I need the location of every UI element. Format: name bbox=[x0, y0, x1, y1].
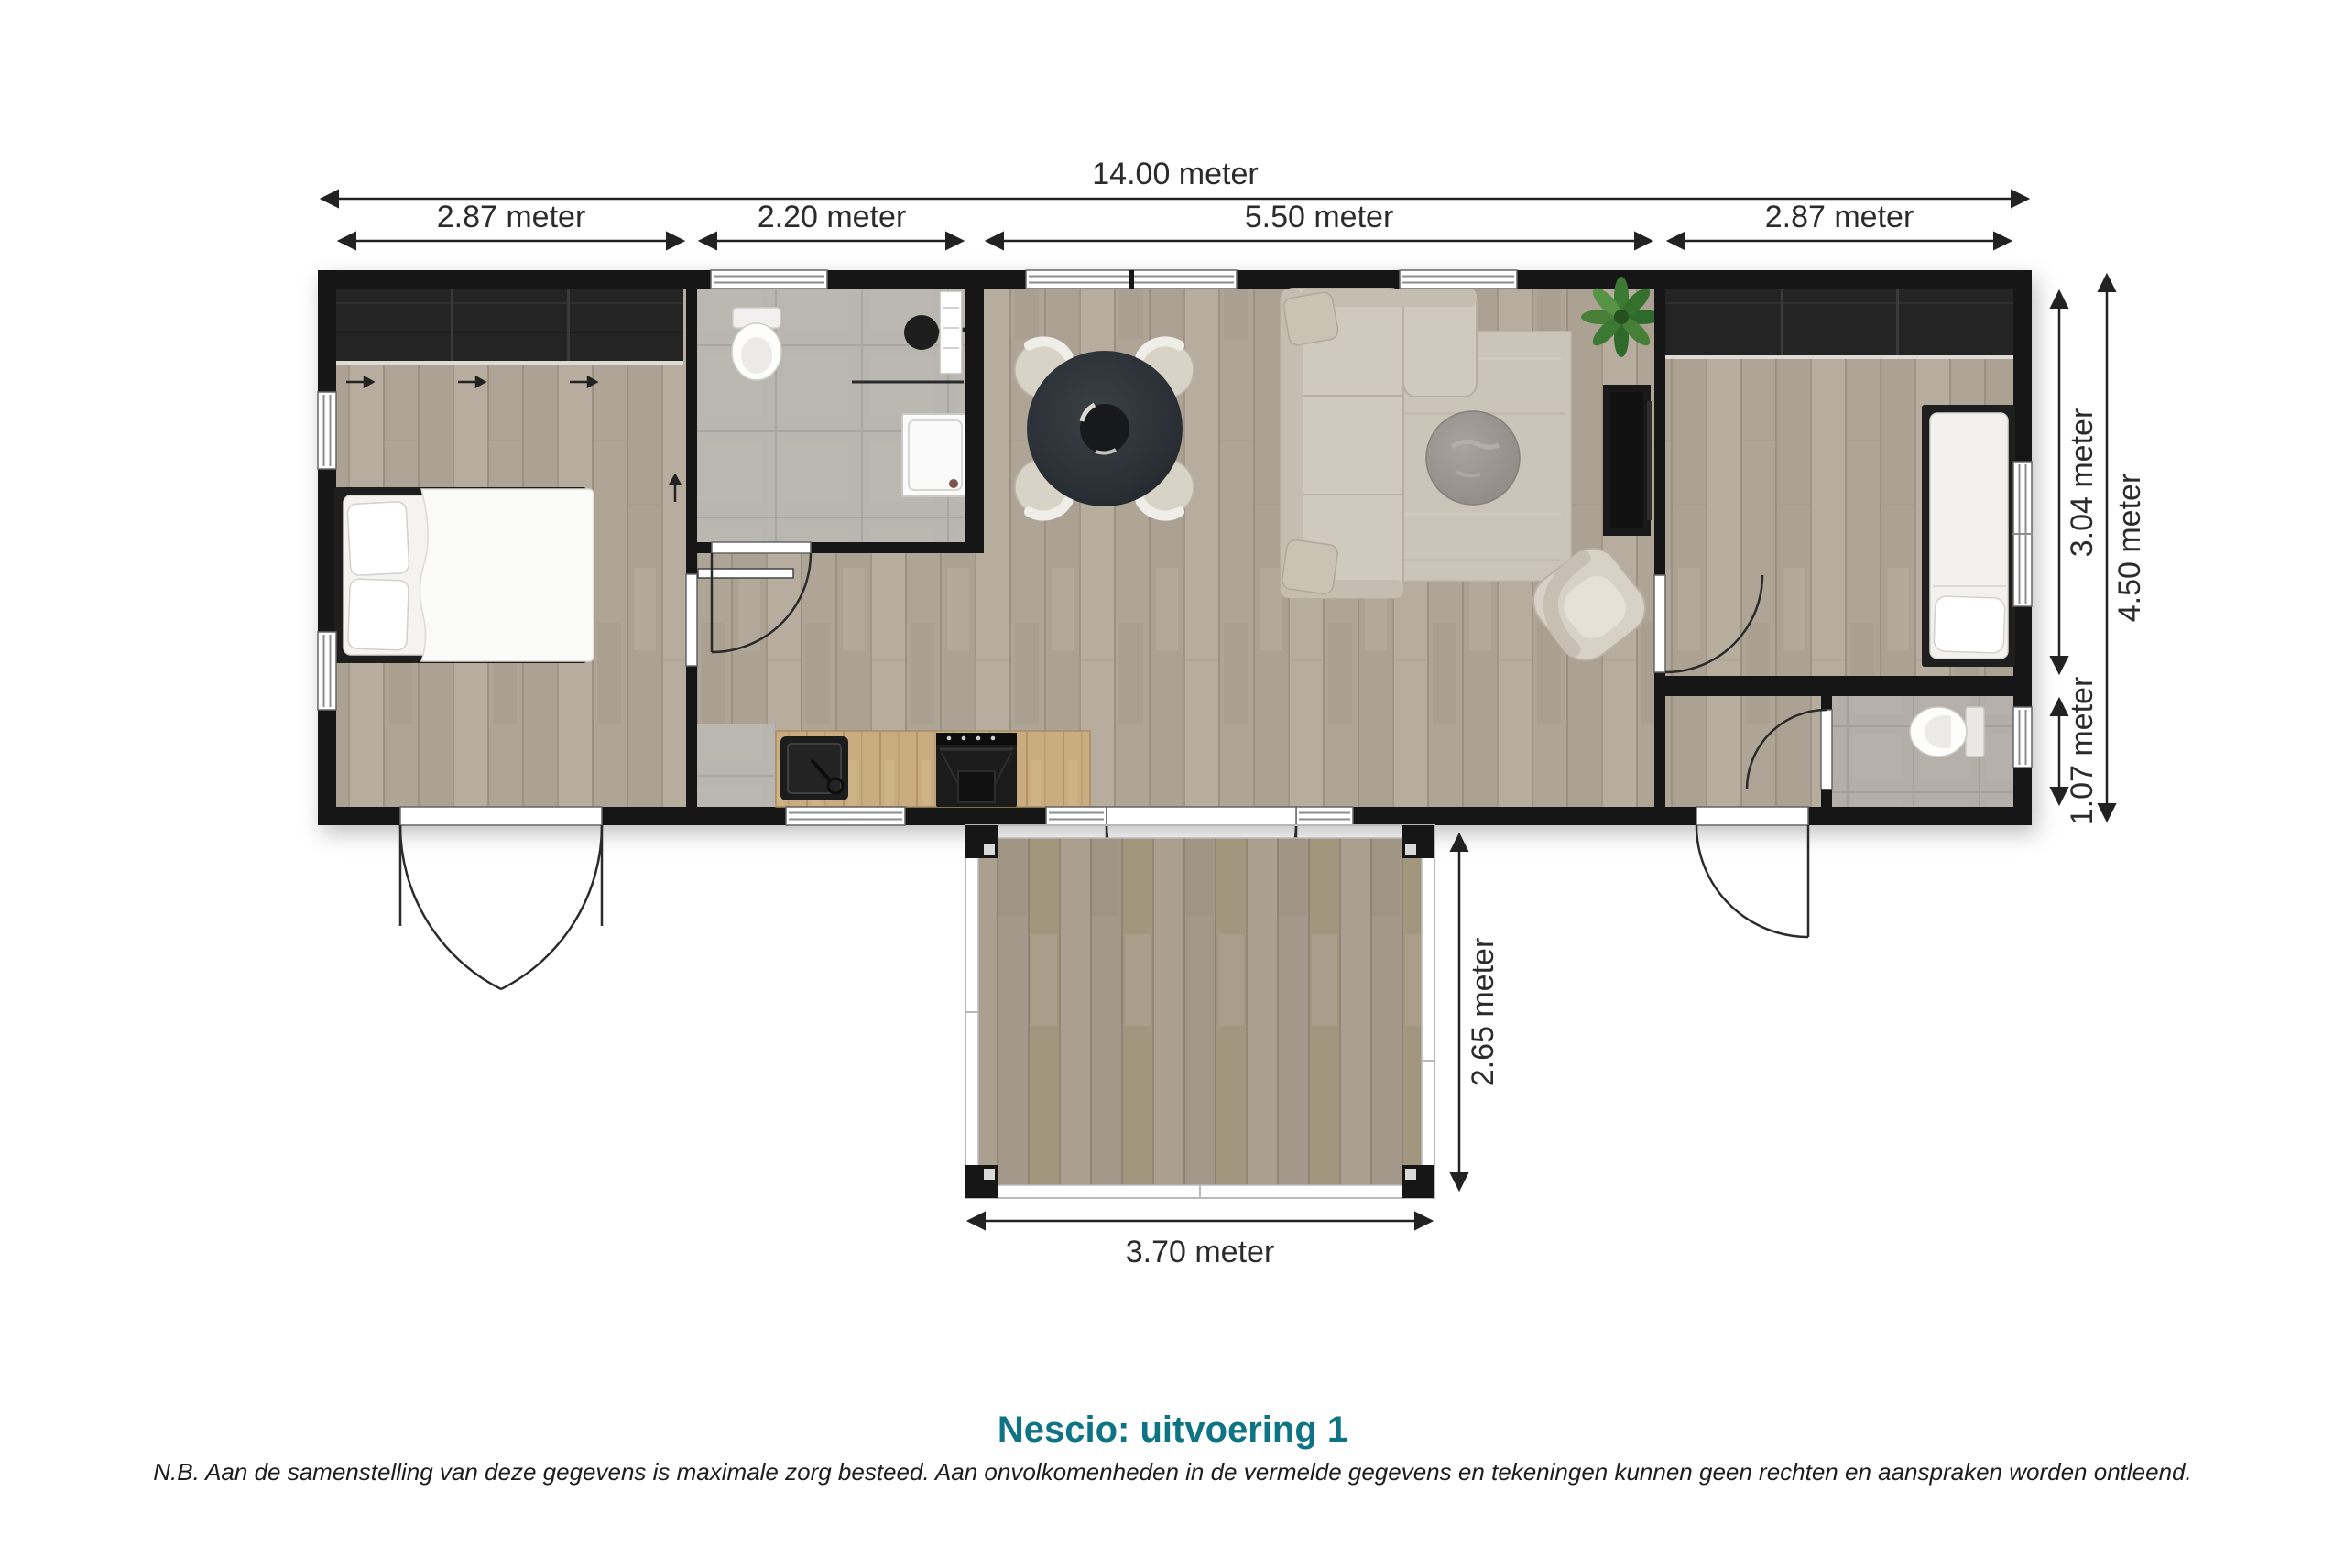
pillow bbox=[1934, 596, 2005, 654]
window-living-single bbox=[1400, 270, 1517, 289]
dim-total-width: 14.00 meter bbox=[1092, 157, 1258, 191]
single-bed bbox=[1922, 405, 2015, 667]
window-bedroom1-b bbox=[318, 632, 336, 710]
coffee-table bbox=[1426, 411, 1520, 505]
tv-cabinet bbox=[1603, 385, 1652, 536]
window-living-double bbox=[1026, 270, 1237, 289]
window-terrace-left bbox=[1046, 807, 1107, 825]
wall-bedroom2-south bbox=[1665, 676, 2013, 696]
dim-seg4: 2.87 meter bbox=[1765, 200, 1914, 234]
dim-seg2: 2.20 meter bbox=[758, 200, 907, 234]
double-bed bbox=[334, 487, 594, 663]
toilet-icon bbox=[732, 308, 781, 380]
wall-bedroom2 bbox=[1654, 270, 1665, 807]
wc-toilet-icon bbox=[1910, 707, 1984, 757]
dim-terrace-depth: 2.65 meter bbox=[1466, 938, 1500, 1087]
shower-drain bbox=[949, 479, 958, 488]
dim-right-wc: 1.07 meter bbox=[2065, 677, 2100, 826]
wall-bathroom-east bbox=[965, 270, 984, 553]
pillow bbox=[348, 579, 409, 650]
window-wc bbox=[2013, 707, 2032, 768]
wardrobe-left bbox=[336, 289, 683, 365]
sink-icon bbox=[780, 736, 848, 800]
kitchen-floor-tile bbox=[697, 724, 776, 807]
window-bedroom2 bbox=[2013, 462, 2032, 606]
caption-block: Nescio: uitvoering 1 N.B. Aan de samenst… bbox=[0, 1409, 2345, 1486]
wardrobe-right bbox=[1665, 289, 2013, 359]
floor-plan-image: 14.00 meter 2.87 meter 2.20 meter 5.50 m… bbox=[0, 0, 2345, 1563]
terrace bbox=[965, 825, 1434, 1198]
window-bedroom1-a bbox=[318, 392, 336, 469]
dim-seg1: 2.87 meter bbox=[437, 200, 586, 234]
window-terrace-right bbox=[1296, 807, 1353, 825]
page-title: Nescio: uitvoering 1 bbox=[0, 1409, 2345, 1451]
stove-icon bbox=[936, 733, 1017, 807]
towel-radiator bbox=[940, 291, 962, 374]
french-door-bedroom1 bbox=[400, 807, 602, 989]
dim-terrace-width: 3.70 meter bbox=[1126, 1235, 1275, 1269]
disclaimer-text: N.B. Aan de samenstelling van deze gegev… bbox=[0, 1458, 2345, 1486]
tv-screen bbox=[1647, 401, 1652, 520]
dining-set bbox=[1003, 330, 1205, 528]
sofa-pillow bbox=[1282, 539, 1339, 594]
window-bathroom bbox=[711, 270, 827, 289]
entrance-door bbox=[1696, 807, 1808, 937]
sofa-pillow bbox=[1282, 291, 1339, 347]
window-kitchen bbox=[786, 807, 905, 825]
pillow bbox=[347, 501, 409, 575]
dim-right-total: 4.50 meter bbox=[2112, 474, 2147, 623]
kitchen-counter bbox=[776, 731, 1090, 807]
dim-right-bedroom: 3.04 meter bbox=[2065, 408, 2100, 558]
wall-bedroom1 bbox=[686, 270, 697, 807]
terrace-deck bbox=[978, 838, 1422, 1185]
duvet bbox=[420, 489, 594, 661]
dim-seg3: 5.50 meter bbox=[1245, 200, 1394, 234]
